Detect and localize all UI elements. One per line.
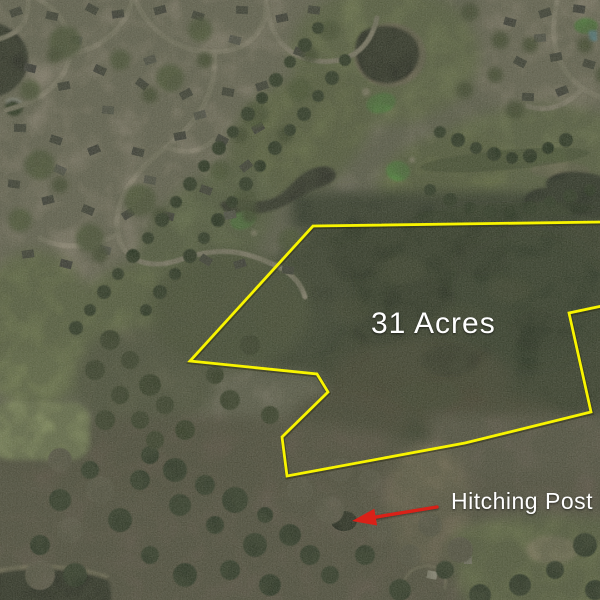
aerial-map: 31 Acres Hitching Post Lu [0, 0, 600, 600]
road-callout-label: Hitching Post Lu [451, 488, 600, 514]
parcel-acreage-label: 31 Acres [371, 307, 496, 340]
